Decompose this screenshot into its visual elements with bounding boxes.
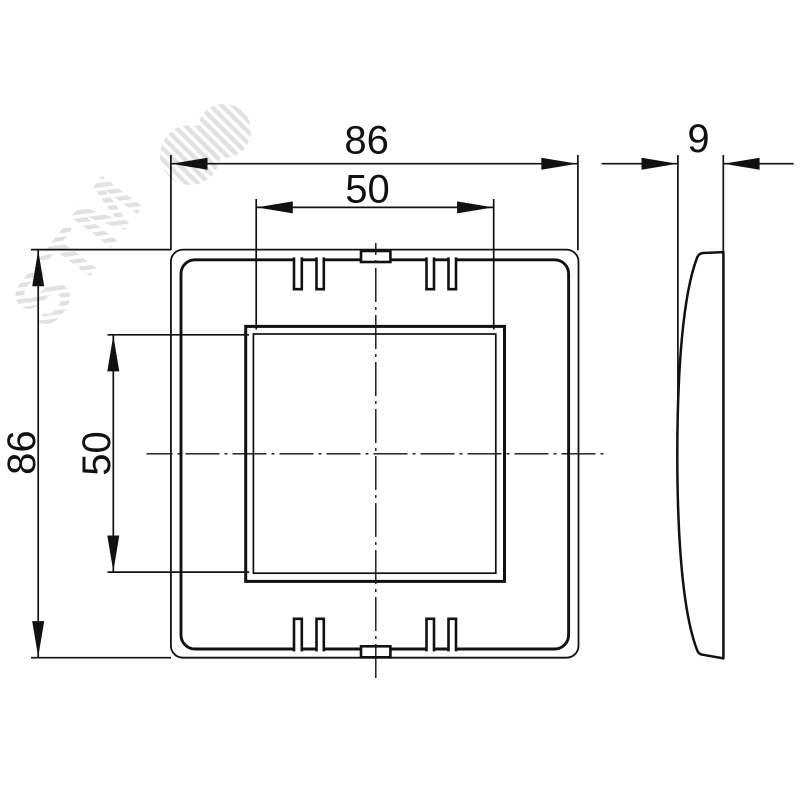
svg-text:86: 86 — [344, 118, 389, 162]
svg-text:9: 9 — [687, 117, 709, 161]
svg-text:86: 86 — [0, 430, 44, 475]
svg-text:50: 50 — [75, 431, 119, 476]
svg-text:50: 50 — [345, 167, 390, 211]
